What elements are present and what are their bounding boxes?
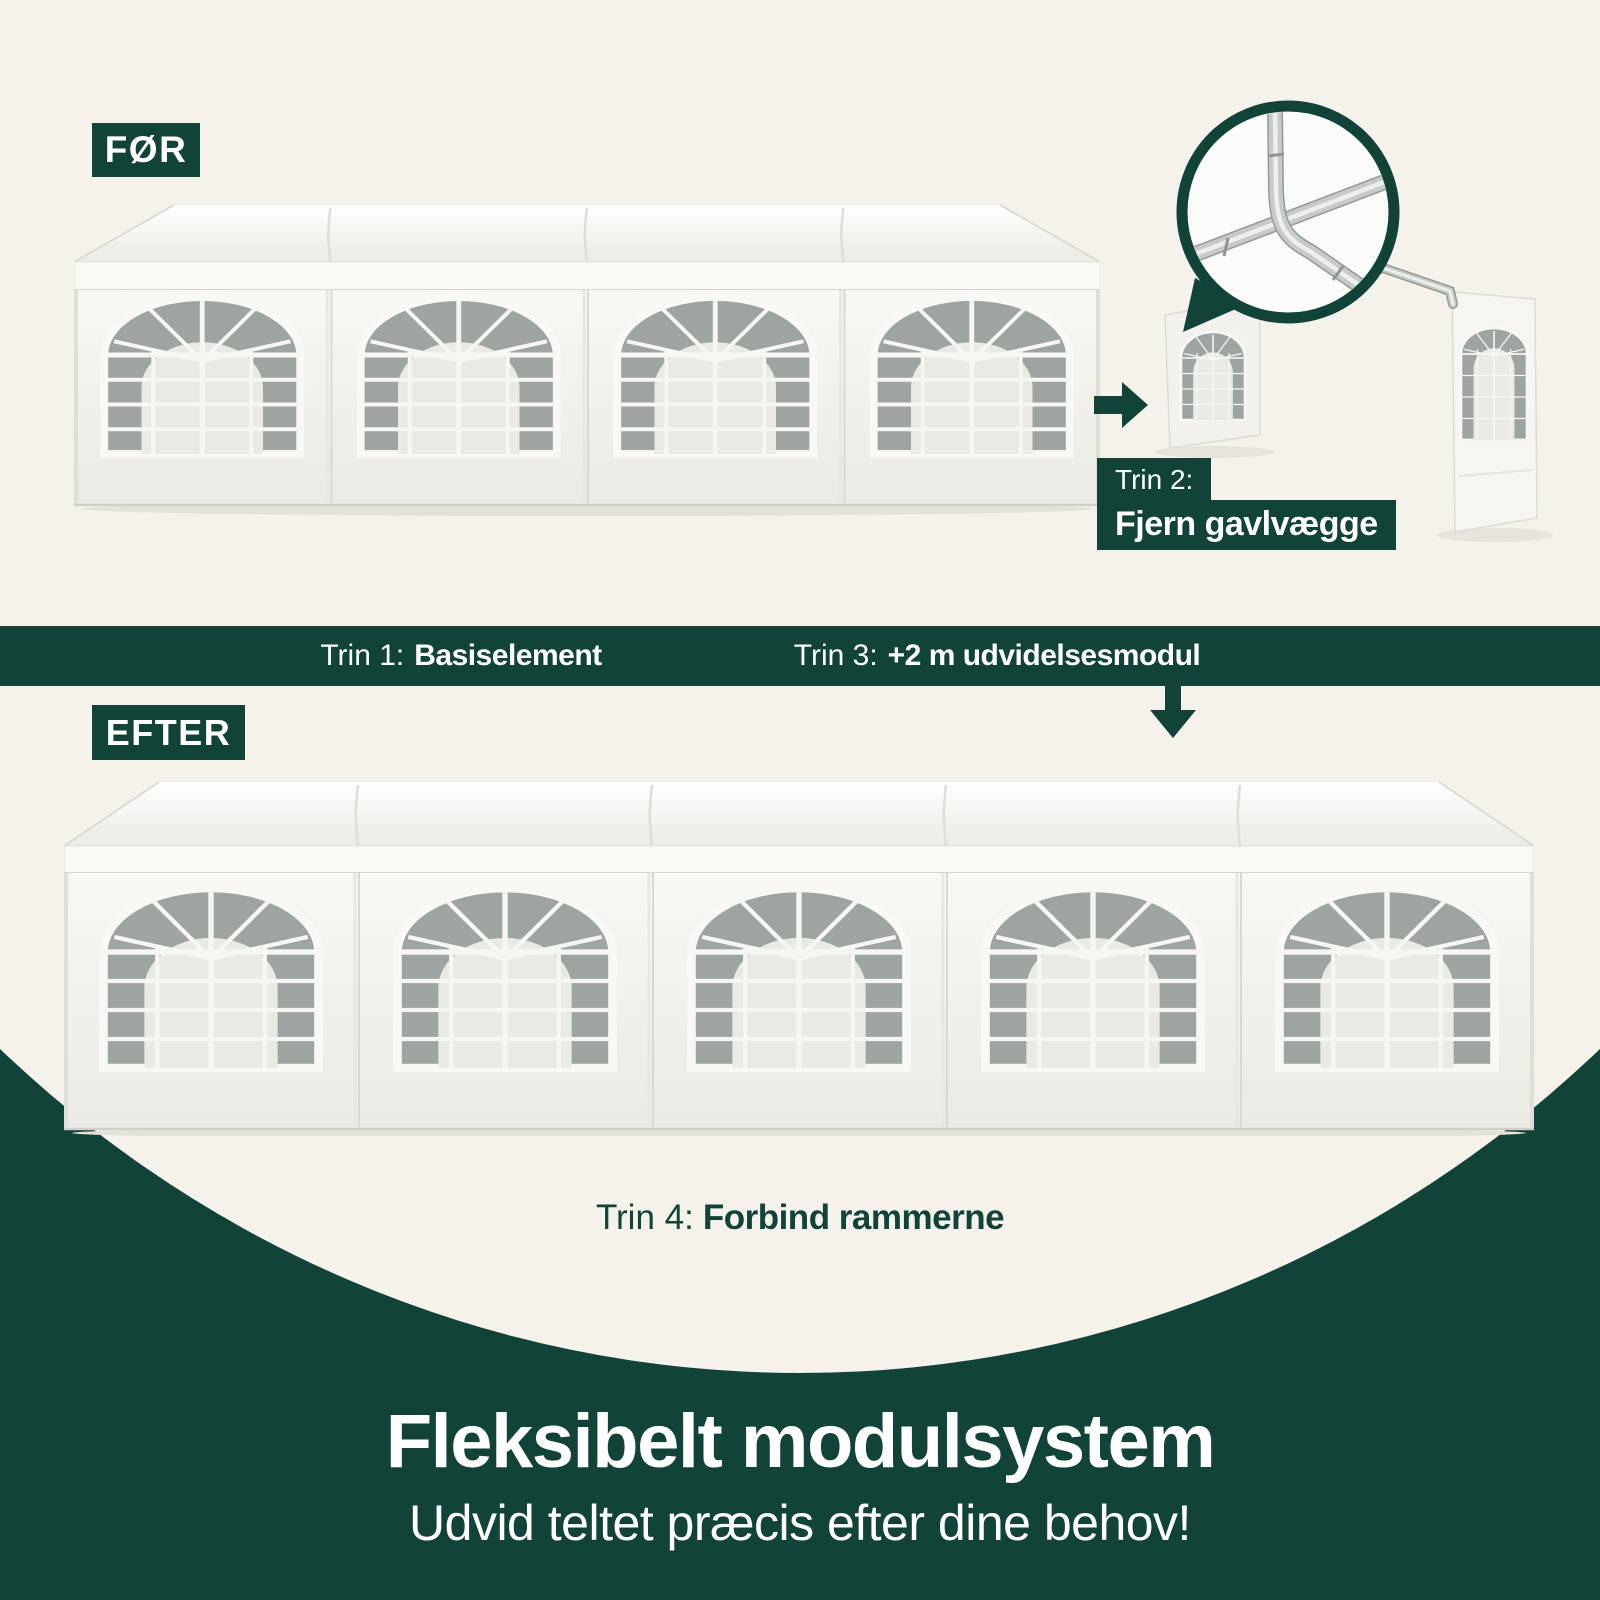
step1-text: Basiselement xyxy=(414,639,601,672)
step1-label: Trin 1:Basiselement xyxy=(320,626,601,686)
infographic-canvas: FØR Trin 2: Fjern gavlvægge Trin 1:Basis… xyxy=(0,0,1600,1600)
step2-prefix: Trin 2: xyxy=(1097,458,1211,500)
content-layer: FØR Trin 2: Fjern gavlvægge Trin 1:Basis… xyxy=(0,0,1600,1600)
before-tag: FØR xyxy=(92,123,200,177)
steps-band: Trin 1:Basiselement Trin 3:+2 m udvidels… xyxy=(0,626,1600,686)
footer-subtitle: Udvid teltet præcis efter dine behov! xyxy=(0,1494,1600,1552)
step3-prefix: Trin 3: xyxy=(794,639,878,672)
step4-label: Trin 4:Forbind rammerne xyxy=(0,1198,1600,1238)
step3-text: +2 m udvidelsesmodul xyxy=(888,639,1201,672)
step3-label: Trin 3:+2 m udvidelsesmodul xyxy=(794,626,1201,686)
tent-after-image xyxy=(64,776,1534,1136)
step4-prefix: Trin 4: xyxy=(596,1198,694,1237)
step4-text: Forbind rammerne xyxy=(703,1198,1004,1237)
before-tag-label: FØR xyxy=(105,129,188,171)
step1-prefix: Trin 1: xyxy=(320,639,404,672)
tent-before-image xyxy=(74,198,1100,516)
down-arrow-icon xyxy=(1146,686,1202,742)
footer-title: Fleksibelt modulsystem xyxy=(0,1398,1600,1485)
step2-label: Trin 2: Fjern gavlvægge xyxy=(1097,458,1396,550)
after-tag: EFTER xyxy=(92,705,245,760)
after-tag-label: EFTER xyxy=(106,712,232,754)
step2-text: Fjern gavlvægge xyxy=(1097,500,1396,550)
